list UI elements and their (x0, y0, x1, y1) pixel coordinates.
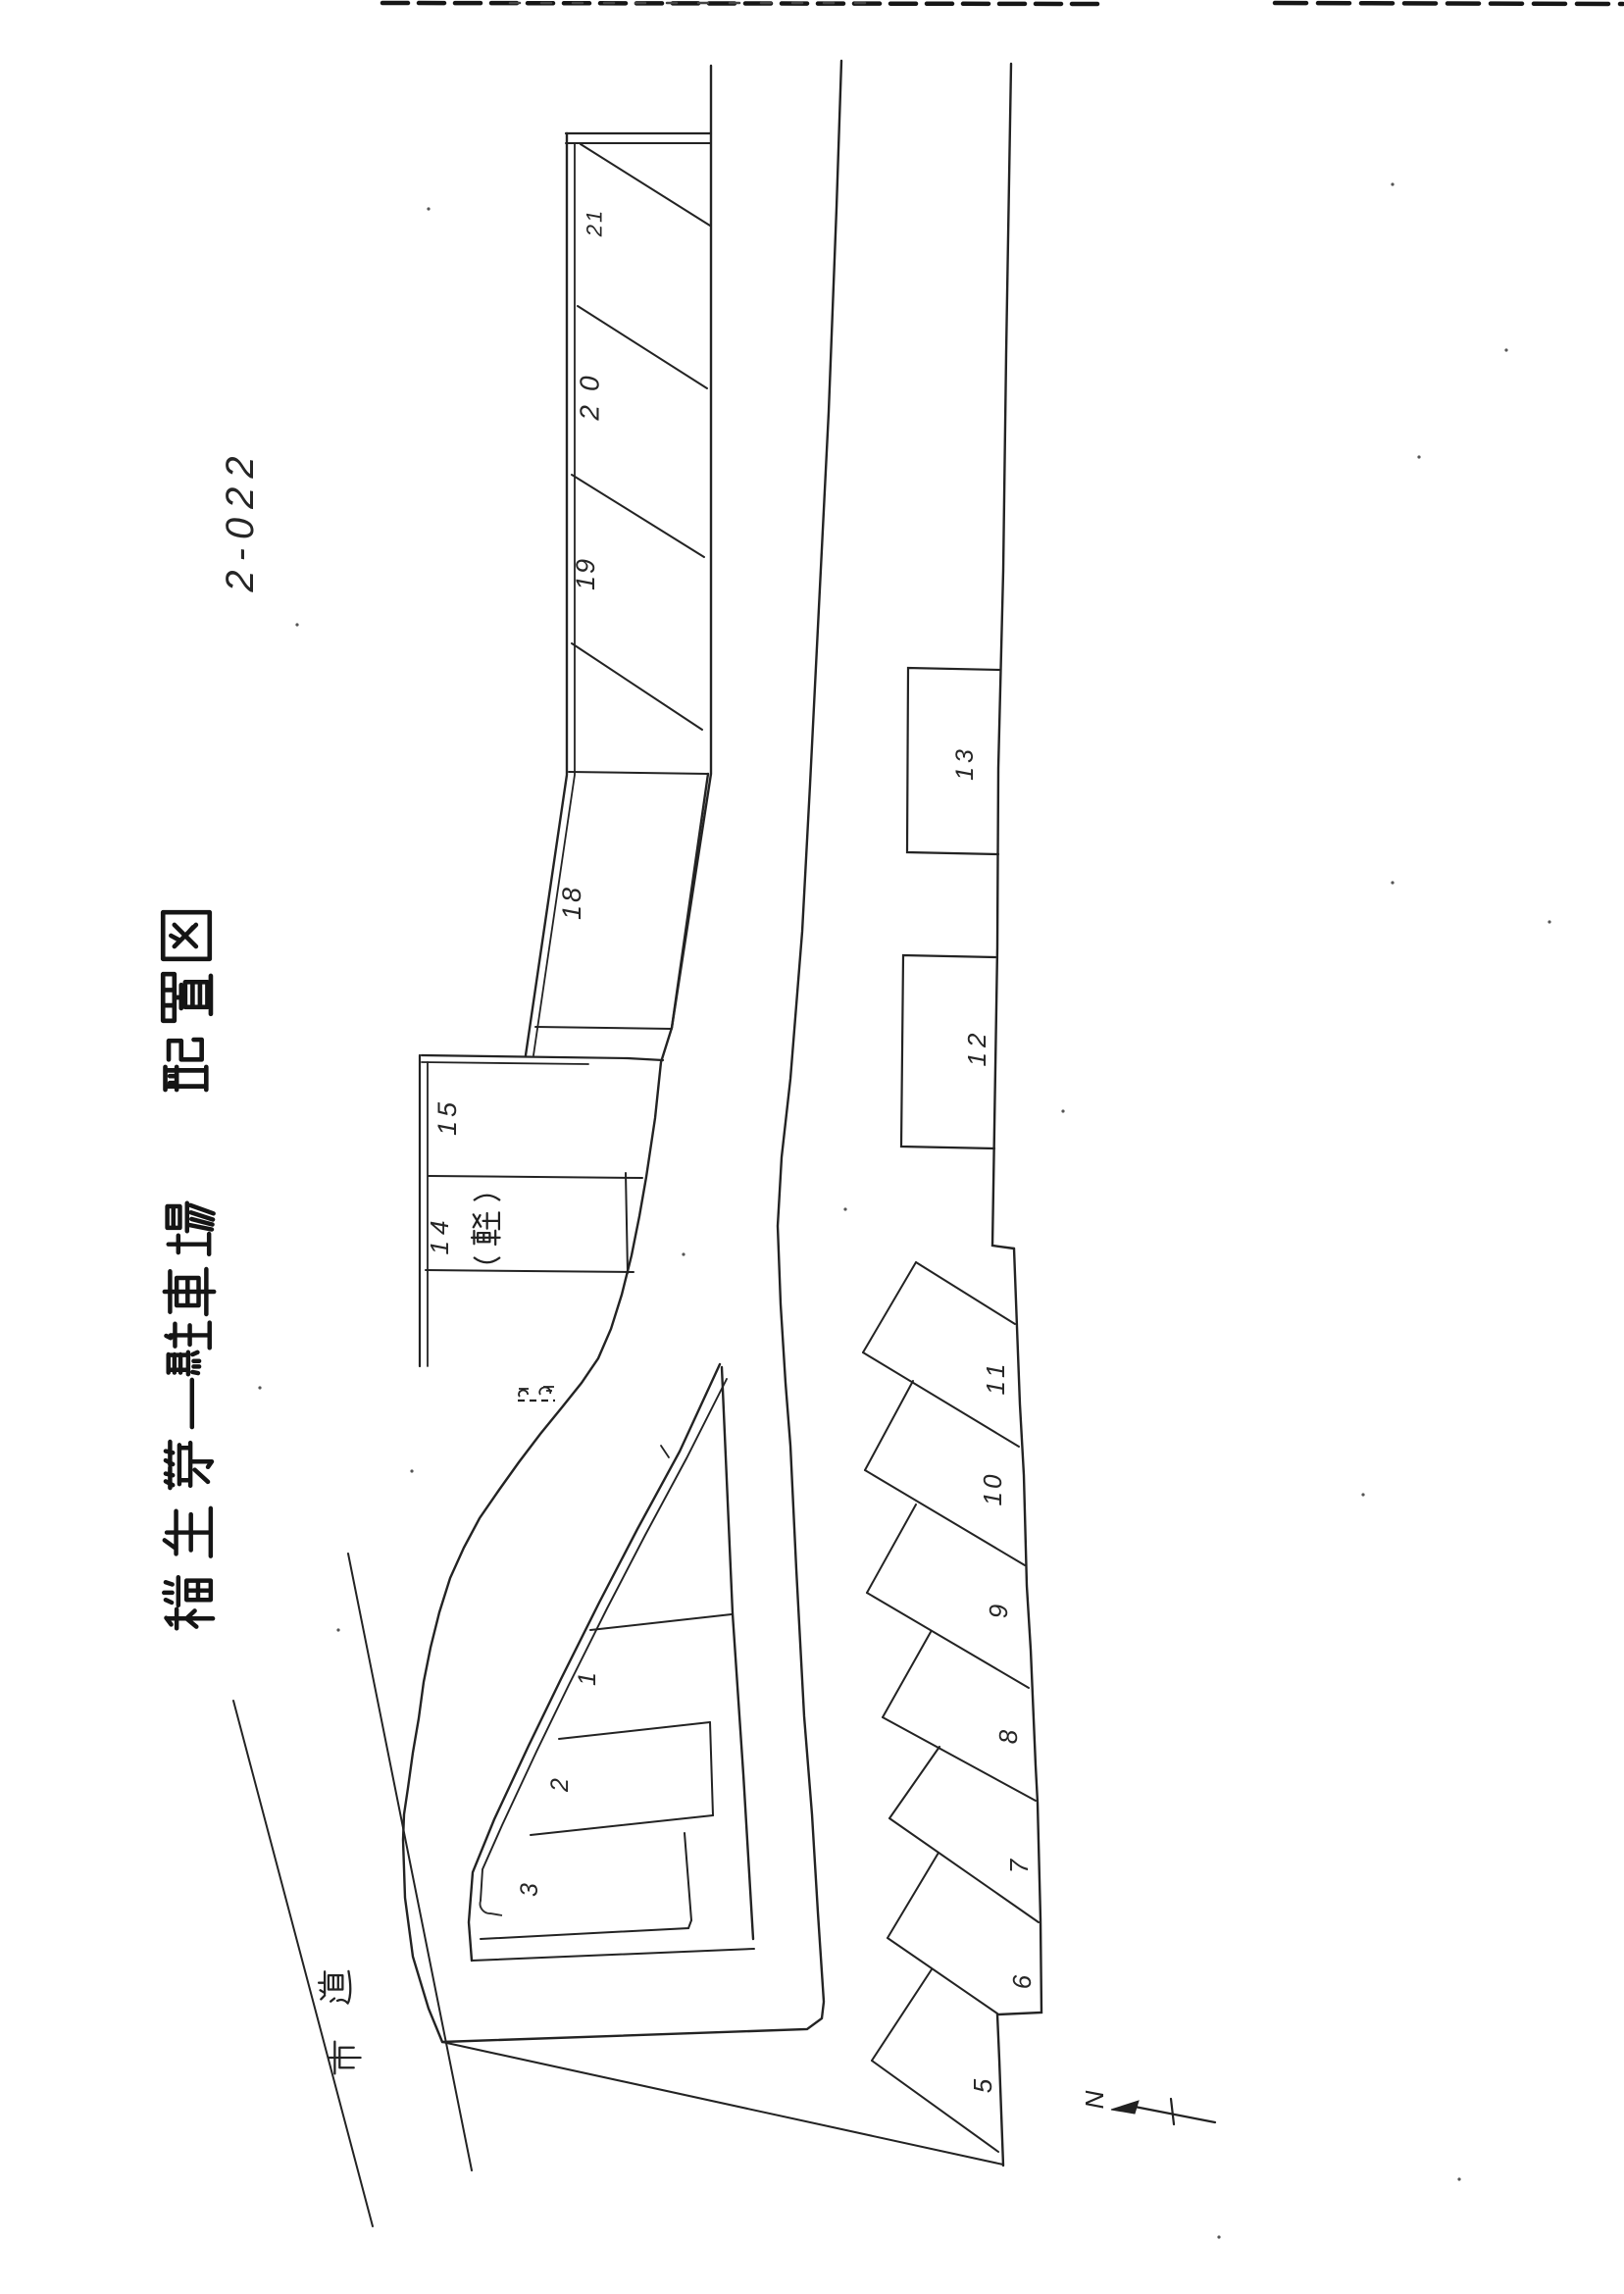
svg-text:20: 20 (575, 362, 605, 421)
svg-text:N: N (1080, 2090, 1109, 2109)
svg-text:12: 12 (962, 1029, 991, 1067)
svg-text:9: 9 (984, 1605, 1013, 1618)
svg-text:15: 15 (432, 1098, 462, 1136)
svg-text:19: 19 (571, 557, 600, 590)
svg-text:8: 8 (993, 1729, 1023, 1744)
svg-text:2: 2 (546, 1778, 574, 1793)
svg-text:7: 7 (1004, 1858, 1034, 1873)
svg-text:14: 14 (425, 1215, 454, 1255)
svg-text:2-022: 2-022 (219, 447, 262, 592)
svg-text:10: 10 (978, 1472, 1007, 1506)
svg-text:3: 3 (516, 1883, 543, 1897)
svg-text:1: 1 (574, 1672, 601, 1686)
svg-text:13: 13 (951, 745, 979, 781)
svg-text:5: 5 (968, 2078, 997, 2093)
svg-text:21: 21 (583, 209, 607, 237)
svg-text:6: 6 (1007, 1974, 1037, 1989)
svg-text:18: 18 (557, 885, 586, 920)
svg-text:11: 11 (981, 1359, 1010, 1396)
